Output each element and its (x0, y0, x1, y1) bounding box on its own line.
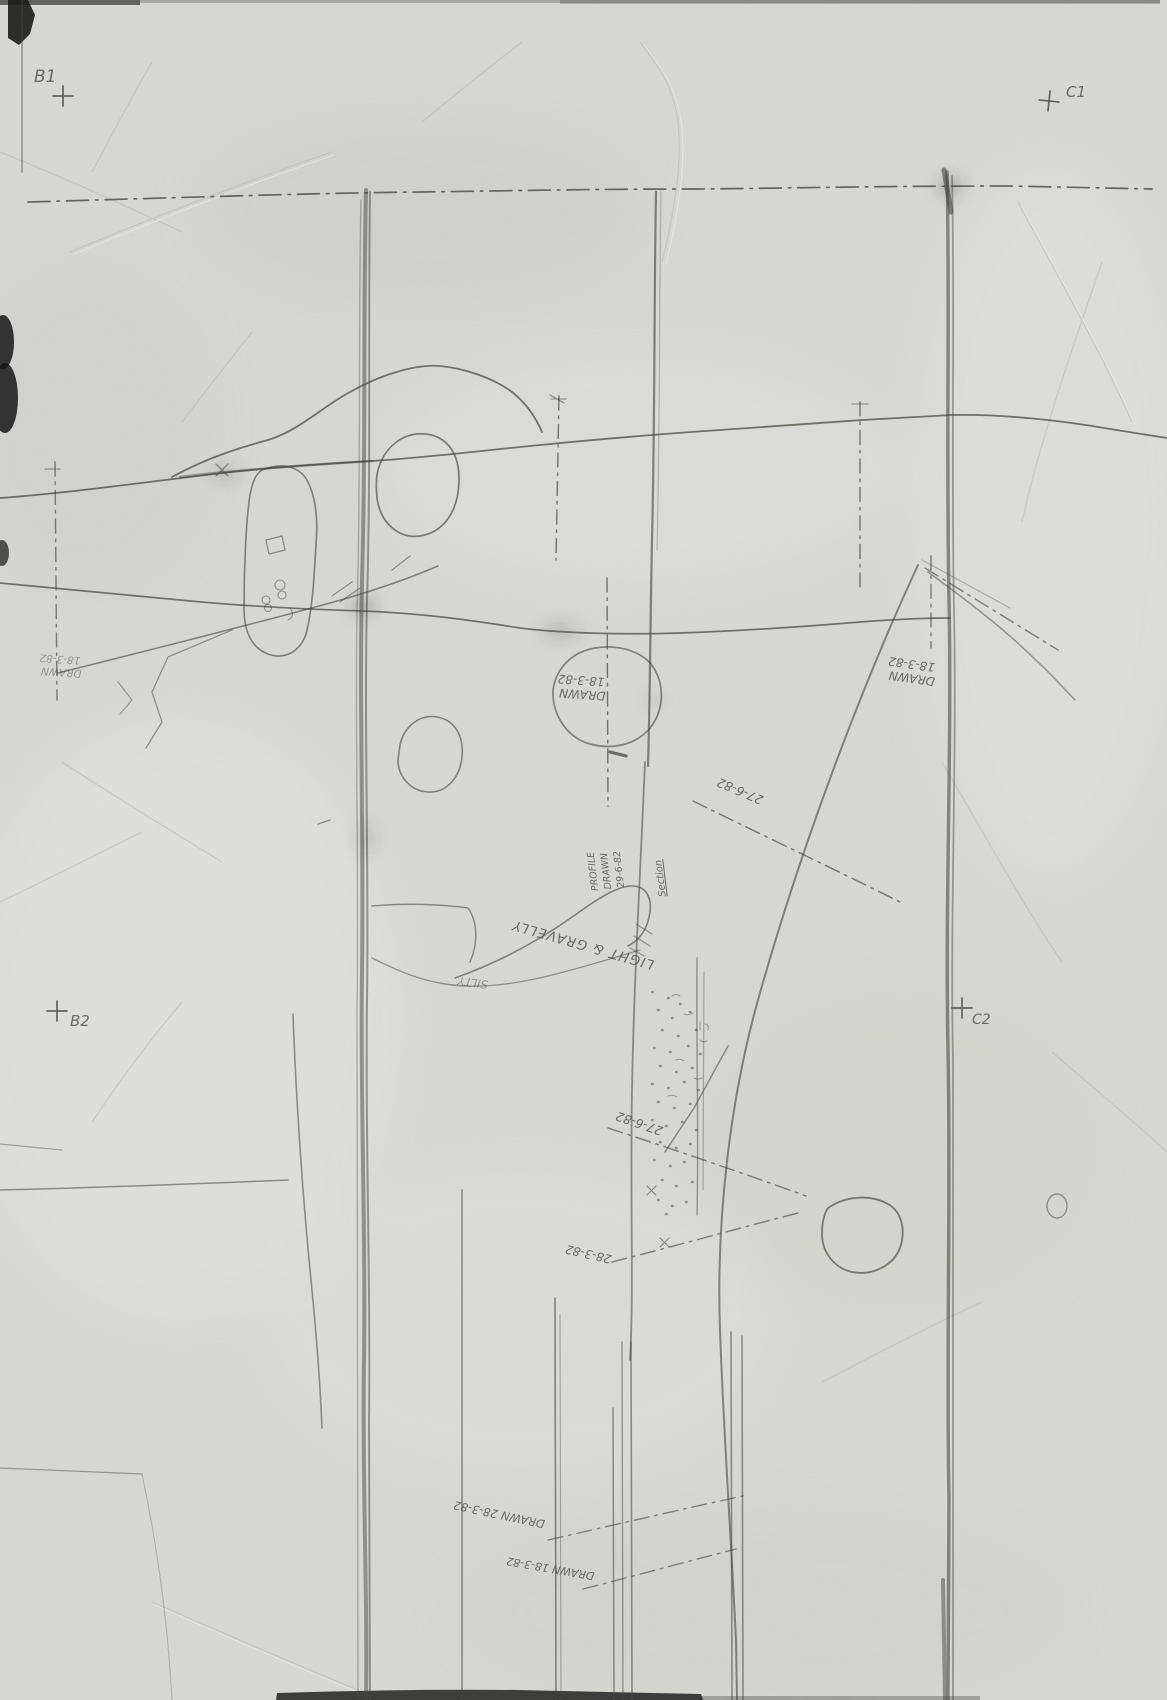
scanned-drawing-sheet: B1 C1 B2 C2 DRAWN 18-3-82 DRAWN 18-3-82 … (0, 0, 1167, 1700)
scan-strip-bottom-2 (700, 1696, 980, 1700)
scan-strip-top-3 (560, 0, 1160, 4)
annotation-left-drawn: DRAWN 18-3-82 (38, 651, 83, 679)
paper-background (0, 0, 1167, 1700)
scan-strip-top-2 (140, 0, 560, 3)
grid-label-b1: B1 (34, 67, 56, 87)
annotation-mid-drawn: DRAWN 18-3-82 (556, 672, 607, 703)
paper-grain (0, 0, 1167, 1700)
annotation-profile-note: PROFILE DRAWN 29-6-82 (586, 848, 628, 892)
grid-label-c2: C2 (972, 1012, 991, 1028)
grid-label-c1: C1 (1066, 83, 1086, 101)
scan-strip-top-1 (0, 0, 140, 5)
grid-label-b2: B2 (70, 1012, 90, 1030)
